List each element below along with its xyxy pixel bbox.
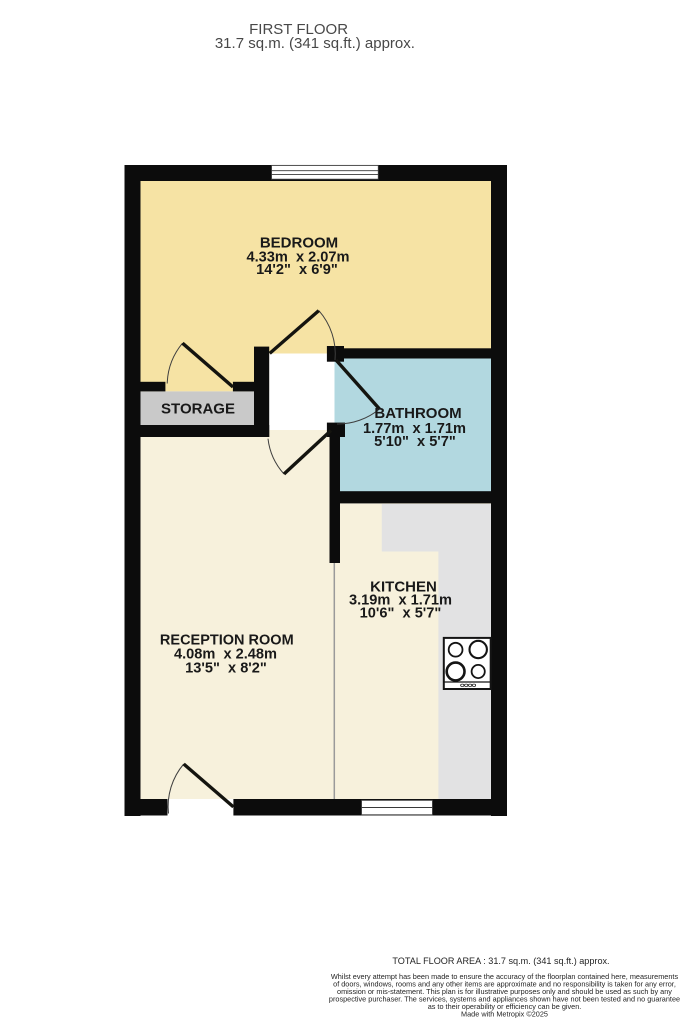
svg-text:13'5" x 8'2": 13'5" x 8'2"	[185, 660, 267, 676]
svg-text:14'2" x 6'9": 14'2" x 6'9"	[256, 262, 338, 278]
svg-text:STORAGE: STORAGE	[161, 400, 235, 417]
svg-text:10'6" x 5'7": 10'6" x 5'7"	[360, 606, 442, 622]
svg-text:Made with Metropix ©2025: Made with Metropix ©2025	[461, 1010, 548, 1019]
svg-text:TOTAL FLOOR AREA : 31.7 sq.m.: TOTAL FLOOR AREA : 31.7 sq.m. (341 sq.ft…	[392, 956, 609, 966]
svg-text:5'10" x 5'7": 5'10" x 5'7"	[374, 434, 456, 450]
svg-text:BATHROOM: BATHROOM	[374, 405, 461, 422]
svg-text:31.7 sq.m. (341 sq.ft.) approx: 31.7 sq.m. (341 sq.ft.) approx.	[215, 35, 415, 52]
